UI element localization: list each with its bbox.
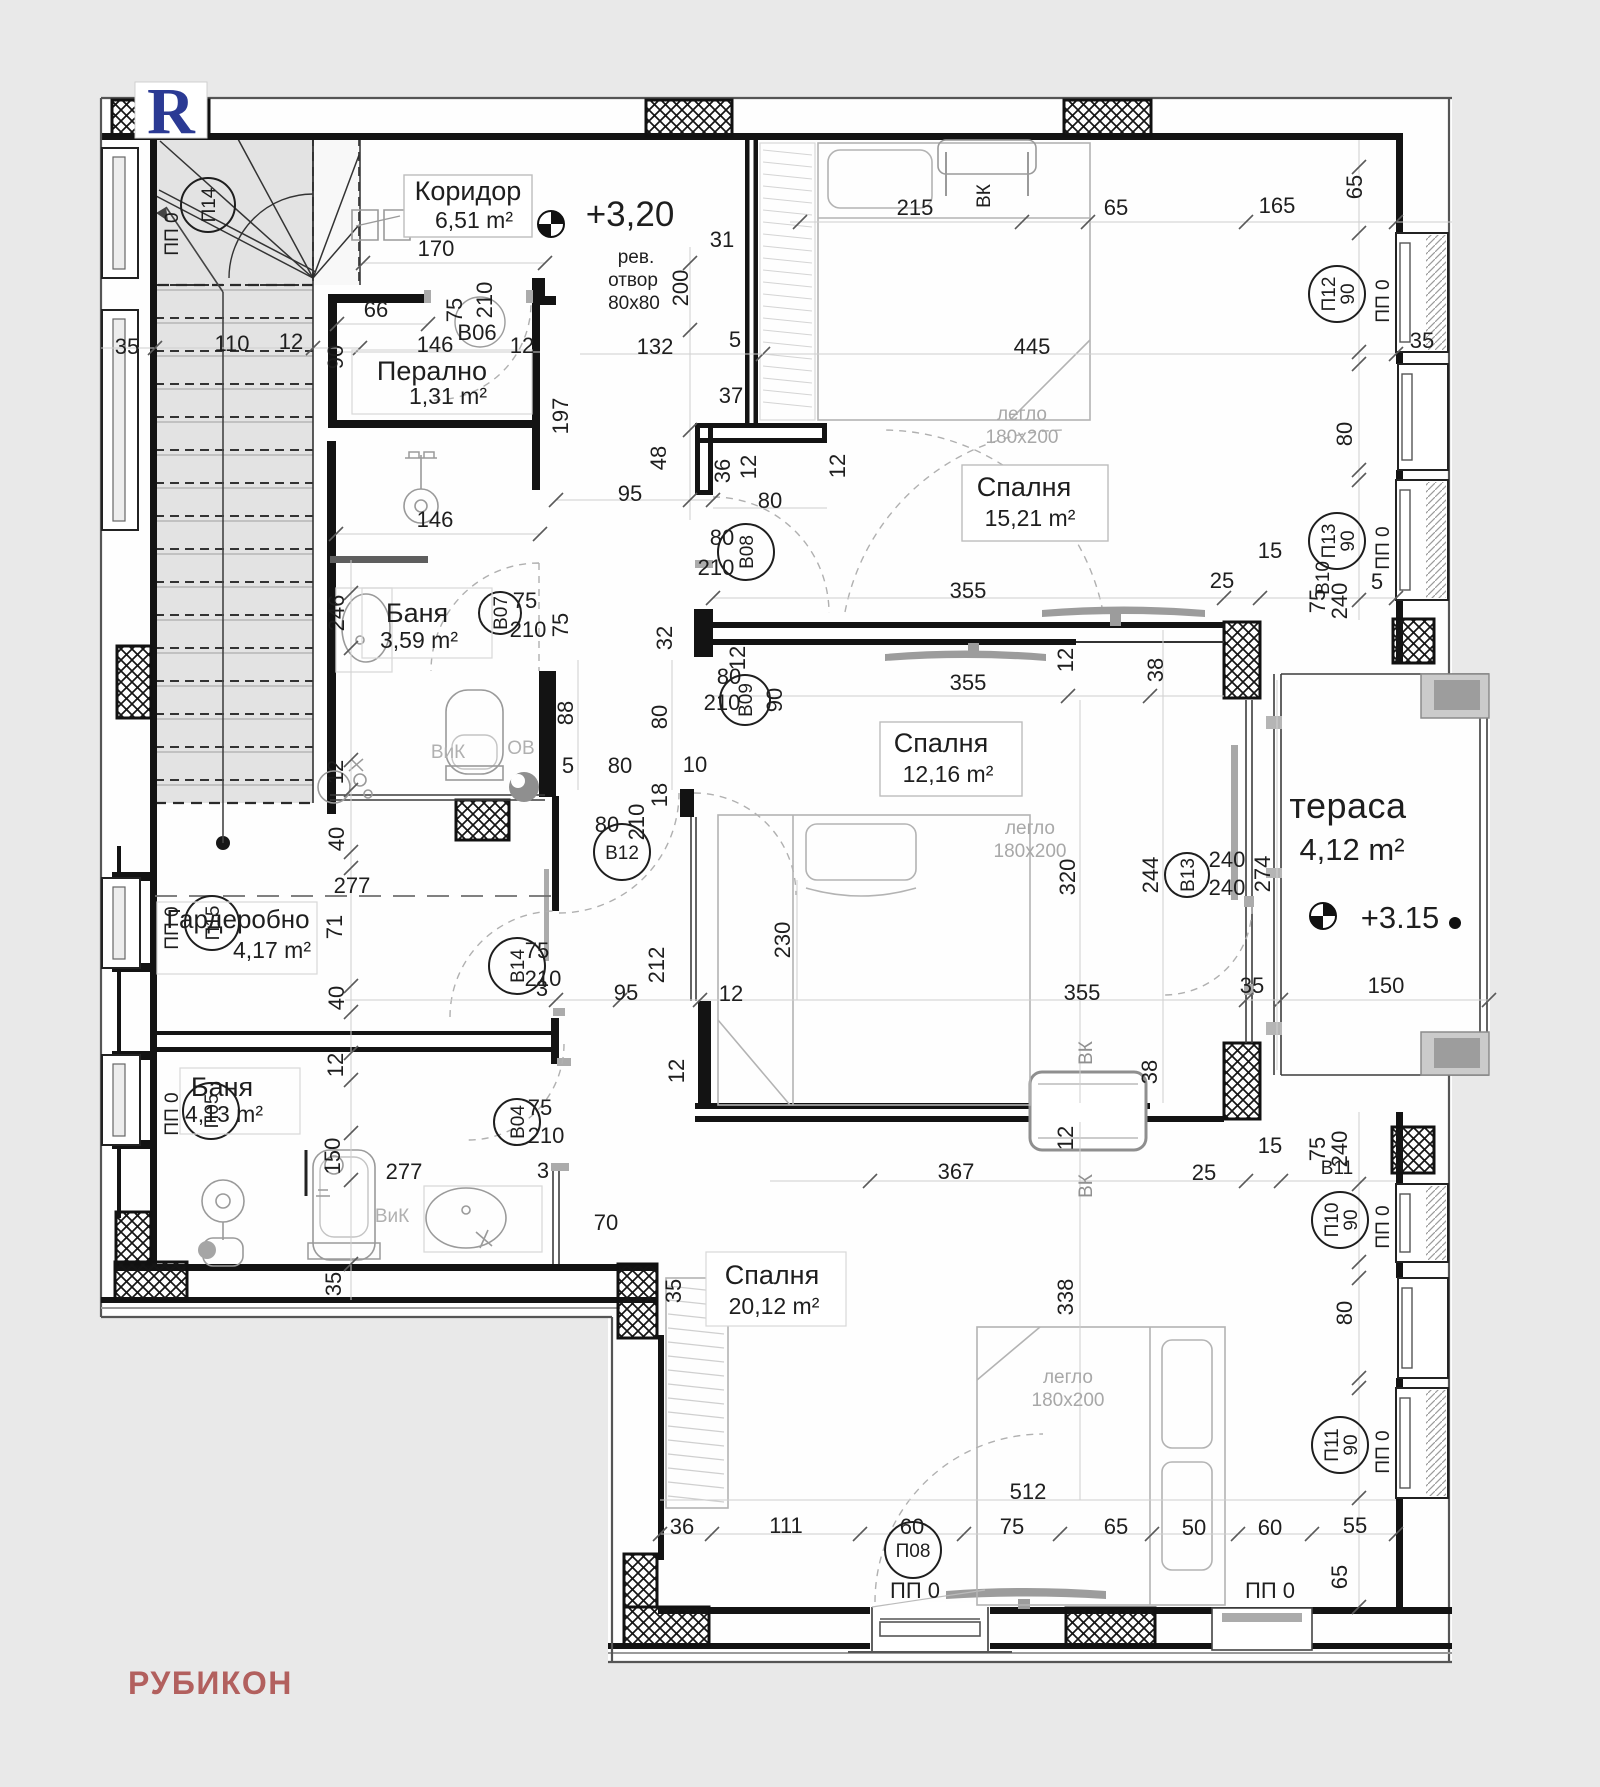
svg-text:90: 90 bbox=[1338, 530, 1359, 551]
svg-text:легло: легло bbox=[997, 404, 1047, 425]
svg-text:5: 5 bbox=[562, 753, 574, 778]
svg-text:277: 277 bbox=[334, 873, 371, 898]
svg-text:246: 246 bbox=[324, 595, 349, 632]
svg-text:146: 146 bbox=[417, 507, 454, 532]
svg-text:80: 80 bbox=[1332, 1301, 1357, 1325]
svg-text:210: 210 bbox=[704, 690, 741, 715]
svg-text:12: 12 bbox=[323, 760, 348, 784]
svg-text:32: 32 bbox=[652, 626, 677, 650]
svg-text:88: 88 bbox=[553, 701, 578, 725]
svg-text:75: 75 bbox=[548, 613, 573, 637]
svg-text:ВиК: ВиК bbox=[375, 1206, 409, 1227]
svg-text:3,59 m²: 3,59 m² bbox=[380, 627, 458, 653]
svg-text:В06: В06 bbox=[457, 320, 496, 345]
svg-text:6,51 m²: 6,51 m² bbox=[435, 207, 513, 233]
svg-text:R: R bbox=[147, 75, 196, 148]
svg-text:Спалня: Спалня bbox=[894, 728, 988, 758]
svg-text:ПП 0: ПП 0 bbox=[1373, 1205, 1394, 1248]
svg-text:12: 12 bbox=[510, 333, 534, 358]
svg-text:40: 40 bbox=[324, 986, 349, 1010]
svg-text:215: 215 bbox=[897, 195, 934, 220]
svg-text:212: 212 bbox=[644, 947, 669, 984]
svg-text:210: 210 bbox=[698, 555, 735, 580]
svg-text:В08: В08 bbox=[737, 535, 758, 569]
svg-text:55: 55 bbox=[1343, 1513, 1367, 1538]
svg-text:12: 12 bbox=[719, 981, 743, 1006]
svg-text:80х80: 80х80 bbox=[608, 293, 660, 314]
svg-text:75: 75 bbox=[1000, 1514, 1024, 1539]
svg-text:П11: П11 bbox=[1322, 1428, 1343, 1461]
svg-text:35: 35 bbox=[115, 334, 139, 359]
svg-text:355: 355 bbox=[950, 670, 987, 695]
svg-text:90: 90 bbox=[762, 688, 787, 712]
svg-text:12: 12 bbox=[1053, 1126, 1078, 1150]
svg-text:70: 70 bbox=[594, 1210, 618, 1235]
svg-text:65: 65 bbox=[1104, 195, 1128, 220]
svg-text:РУБИКОН: РУБИКОН bbox=[128, 1665, 293, 1701]
svg-text:240: 240 bbox=[1209, 847, 1246, 872]
svg-text:ПП 0: ПП 0 bbox=[1373, 526, 1394, 569]
svg-text:36: 36 bbox=[710, 459, 735, 483]
svg-text:40: 40 bbox=[324, 827, 349, 851]
svg-text:ВК: ВК bbox=[974, 184, 995, 208]
svg-text:180х200: 180х200 bbox=[1032, 1390, 1105, 1411]
svg-text:80: 80 bbox=[647, 705, 672, 729]
svg-text:65: 65 bbox=[1342, 175, 1367, 199]
svg-text:+3.15: +3.15 bbox=[1361, 900, 1439, 935]
svg-text:ПП 0: ПП 0 bbox=[162, 212, 183, 255]
svg-text:111: 111 bbox=[769, 1513, 802, 1538]
svg-text:25: 25 bbox=[1192, 1160, 1216, 1185]
svg-text:37: 37 bbox=[719, 383, 743, 408]
svg-text:12: 12 bbox=[323, 1053, 348, 1077]
svg-text:80: 80 bbox=[595, 812, 619, 837]
svg-text:ПП 0: ПП 0 bbox=[1245, 1578, 1295, 1603]
svg-text:П14: П14 bbox=[199, 187, 220, 222]
svg-text:60: 60 bbox=[900, 1514, 924, 1539]
svg-text:210: 210 bbox=[472, 282, 497, 319]
svg-text:ВК: ВК bbox=[1076, 1174, 1097, 1198]
svg-text:65: 65 bbox=[1104, 1514, 1128, 1539]
svg-text:210: 210 bbox=[510, 617, 547, 642]
svg-text:338: 338 bbox=[1053, 1279, 1078, 1316]
svg-text:4,17 m²: 4,17 m² bbox=[233, 937, 311, 963]
svg-text:66: 66 bbox=[364, 297, 388, 322]
svg-text:Перално: Перално bbox=[377, 356, 487, 386]
svg-text:75: 75 bbox=[525, 938, 549, 963]
svg-text:В11: В11 bbox=[1321, 1158, 1353, 1179]
svg-text:П13: П13 bbox=[1319, 524, 1340, 559]
svg-text:15: 15 bbox=[1258, 1133, 1282, 1158]
svg-text:35: 35 bbox=[1240, 973, 1264, 998]
svg-text:355: 355 bbox=[1064, 980, 1101, 1005]
svg-text:тераса: тераса bbox=[1289, 785, 1407, 826]
svg-text:легло: легло bbox=[1043, 1367, 1093, 1388]
svg-text:П08: П08 bbox=[896, 1541, 931, 1562]
svg-text:60: 60 bbox=[1258, 1515, 1282, 1540]
svg-text:ПП 0: ПП 0 bbox=[1373, 279, 1394, 322]
svg-text:отвор: отвор bbox=[608, 270, 658, 291]
svg-text:Гардеробно: Гардеробно bbox=[166, 904, 309, 934]
svg-text:ПП 0: ПП 0 bbox=[162, 906, 183, 949]
svg-text:рев.: рев. bbox=[618, 247, 655, 268]
svg-text:197: 197 bbox=[548, 398, 573, 435]
svg-text:Спалня: Спалня bbox=[977, 472, 1071, 502]
svg-text:15: 15 bbox=[1258, 538, 1282, 563]
svg-text:В13: В13 bbox=[1178, 858, 1199, 892]
svg-text:90: 90 bbox=[1341, 1209, 1362, 1230]
svg-text:12: 12 bbox=[725, 646, 750, 670]
svg-text:65: 65 bbox=[1327, 1565, 1352, 1589]
svg-text:244: 244 bbox=[1138, 857, 1163, 894]
svg-text:90: 90 bbox=[1341, 1434, 1362, 1455]
svg-text:ВиК: ВиК bbox=[431, 742, 465, 763]
svg-text:12,16 m²: 12,16 m² bbox=[903, 761, 994, 787]
svg-text:ПП 0: ПП 0 bbox=[1373, 1430, 1394, 1473]
svg-text:38: 38 bbox=[1143, 658, 1168, 682]
svg-text:90: 90 bbox=[323, 345, 348, 369]
svg-text:80: 80 bbox=[1332, 422, 1357, 446]
svg-text:367: 367 bbox=[938, 1159, 975, 1184]
svg-text:80: 80 bbox=[710, 525, 734, 550]
svg-text:Баня: Баня bbox=[191, 1072, 253, 1102]
svg-text:4,12 m²: 4,12 m² bbox=[1299, 832, 1404, 867]
svg-text:35: 35 bbox=[1410, 328, 1434, 353]
svg-text:210: 210 bbox=[528, 1123, 565, 1148]
svg-text:80: 80 bbox=[758, 488, 782, 513]
svg-text:В12: В12 bbox=[605, 843, 639, 864]
svg-text:230: 230 bbox=[770, 922, 795, 959]
svg-text:20,12 m²: 20,12 m² bbox=[729, 1293, 820, 1319]
svg-text:В10: В10 bbox=[1313, 561, 1334, 595]
svg-text:150: 150 bbox=[1368, 973, 1405, 998]
svg-text:+3,20: +3,20 bbox=[586, 195, 675, 234]
svg-text:445: 445 bbox=[1014, 334, 1051, 359]
svg-text:10: 10 bbox=[683, 752, 707, 777]
svg-text:110: 110 bbox=[214, 331, 249, 356]
svg-text:1,31 m²: 1,31 m² bbox=[409, 383, 487, 409]
svg-text:П12: П12 bbox=[1319, 277, 1340, 312]
svg-text:146: 146 bbox=[417, 332, 454, 357]
svg-text:ОВ: ОВ bbox=[507, 738, 534, 759]
svg-text:35: 35 bbox=[661, 1279, 686, 1303]
svg-text:Коридор: Коридор bbox=[415, 176, 522, 206]
svg-text:75: 75 bbox=[513, 588, 537, 613]
svg-text:95: 95 bbox=[618, 481, 642, 506]
svg-text:38: 38 bbox=[1137, 1060, 1162, 1084]
svg-text:18: 18 bbox=[647, 783, 672, 807]
svg-text:В04: В04 bbox=[508, 1105, 529, 1139]
svg-text:71: 71 bbox=[322, 915, 347, 939]
svg-text:4,13 m²: 4,13 m² bbox=[185, 1101, 263, 1127]
svg-text:легло: легло bbox=[1005, 818, 1055, 839]
svg-text:355: 355 bbox=[950, 578, 987, 603]
svg-text:200: 200 bbox=[668, 270, 693, 307]
svg-text:75: 75 bbox=[528, 1095, 552, 1120]
svg-text:50: 50 bbox=[1182, 1515, 1206, 1540]
svg-text:15,21 m²: 15,21 m² bbox=[985, 505, 1076, 531]
svg-text:75: 75 bbox=[442, 298, 467, 322]
svg-text:132: 132 bbox=[637, 334, 674, 359]
svg-text:ПП 0: ПП 0 bbox=[890, 1578, 940, 1603]
svg-text:ВК: ВК bbox=[1076, 1041, 1097, 1065]
svg-text:Баня: Баня bbox=[386, 598, 448, 628]
svg-text:5: 5 bbox=[729, 327, 741, 352]
svg-text:180х200: 180х200 bbox=[986, 427, 1059, 448]
svg-text:Спалня: Спалня bbox=[725, 1260, 819, 1290]
svg-text:165: 165 bbox=[1259, 193, 1296, 218]
svg-text:3: 3 bbox=[536, 976, 548, 1001]
svg-text:12: 12 bbox=[825, 454, 850, 478]
svg-text:150: 150 bbox=[320, 1138, 345, 1175]
svg-text:210: 210 bbox=[624, 804, 649, 841]
svg-text:36: 36 bbox=[670, 1514, 694, 1539]
svg-text:95: 95 bbox=[614, 980, 638, 1005]
svg-text:5: 5 bbox=[1371, 569, 1383, 594]
svg-text:274: 274 bbox=[1250, 856, 1275, 893]
svg-text:12: 12 bbox=[664, 1059, 689, 1083]
svg-text:48: 48 bbox=[646, 446, 671, 470]
svg-text:320: 320 bbox=[1055, 859, 1080, 896]
svg-text:170: 170 bbox=[418, 236, 455, 261]
svg-text:277: 277 bbox=[386, 1159, 423, 1184]
svg-text:12: 12 bbox=[279, 329, 303, 354]
svg-text:12: 12 bbox=[736, 455, 761, 479]
svg-text:90: 90 bbox=[1338, 283, 1359, 304]
svg-text:3: 3 bbox=[537, 1158, 549, 1183]
svg-text:ПП 0: ПП 0 bbox=[162, 1092, 183, 1135]
svg-text:12: 12 bbox=[1053, 648, 1078, 672]
svg-text:240: 240 bbox=[1209, 875, 1246, 900]
svg-text:80: 80 bbox=[608, 753, 632, 778]
svg-text:31: 31 bbox=[710, 227, 734, 252]
svg-text:512: 512 bbox=[1010, 1479, 1047, 1504]
svg-text:П10: П10 bbox=[1322, 1203, 1343, 1238]
svg-text:25: 25 bbox=[1210, 568, 1234, 593]
svg-text:35: 35 bbox=[321, 1272, 346, 1296]
